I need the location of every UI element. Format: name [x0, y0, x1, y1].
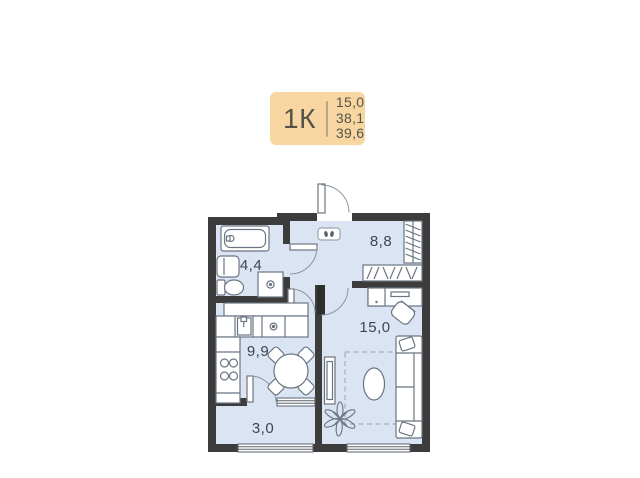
living-room-window — [347, 444, 410, 452]
floor-plan-image[interactable]: 4,4 8,8 9,9 15,0 3,0 — [0, 0, 640, 473]
sofa — [396, 336, 422, 438]
bathroom-area-label: 4,4 — [240, 257, 262, 274]
tv-console — [325, 357, 336, 404]
coffee-table — [364, 368, 385, 400]
bathtub — [221, 226, 269, 251]
balcony-window — [238, 444, 313, 452]
living-room-area-label: 15,0 — [359, 319, 390, 336]
wardrobe — [404, 221, 422, 263]
hallway-area-label: 8,8 — [370, 233, 392, 250]
kitchen-balcony-window — [277, 398, 315, 406]
dishwasher-dot — [270, 323, 277, 330]
kitchen-area-label: 9,9 — [247, 343, 269, 360]
kitchen-counter — [216, 316, 308, 337]
kitchen-sink — [238, 317, 252, 335]
washing-machine — [258, 272, 283, 297]
desk — [368, 288, 422, 306]
entry-door — [318, 184, 349, 213]
kitchen-cabinet-row — [224, 303, 308, 316]
floor-plan-svg: 4,4 8,8 9,9 15,0 3,0 — [0, 0, 640, 473]
toilet — [217, 280, 244, 295]
balcony-area-label: 3,0 — [252, 420, 274, 437]
electrical-panel-icon — [318, 228, 340, 240]
cooktop — [216, 337, 240, 403]
hanger-shelf — [363, 265, 422, 281]
sink — [217, 256, 239, 277]
